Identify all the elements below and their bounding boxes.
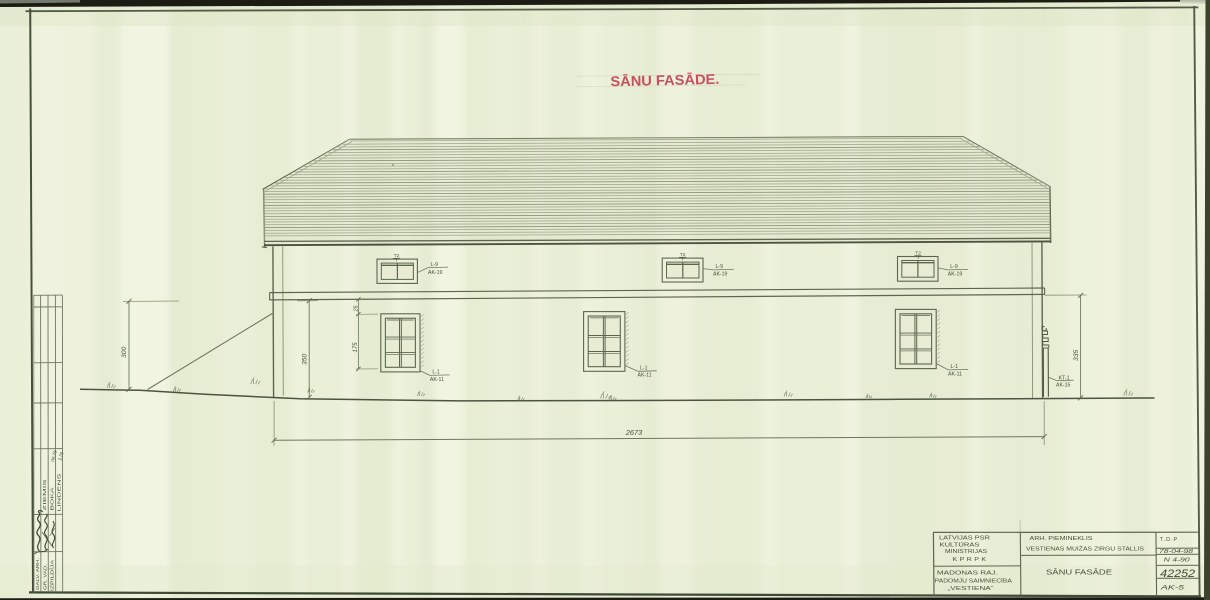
svg-text:AK-19: AK-19 <box>713 272 728 278</box>
svg-text:GALV. ARH.: GALV. ARH. <box>35 558 41 590</box>
svg-text:T.D.P: T.D.P <box>1160 537 1178 543</box>
svg-text:PADOMJU SAIMNIECĪBA: PADOMJU SAIMNIECĪBA <box>935 577 1013 584</box>
svg-text:AK-19: AK-19 <box>948 272 963 278</box>
svg-text:LATVIJAS PSR: LATVIJAS PSR <box>939 535 990 541</box>
svg-text:25: 25 <box>353 305 359 313</box>
svg-text:ZIEMIS: ZIEMIS <box>42 478 48 510</box>
svg-text:LINDENS: LINDENS <box>57 472 63 511</box>
svg-text:AK-11: AK-11 <box>948 372 962 378</box>
svg-text:AK-15: AK-15 <box>1056 383 1071 389</box>
svg-text:IZPILDĪJA: IZPILDĪJA <box>49 559 56 591</box>
svg-text:L-1: L-1 <box>640 365 648 371</box>
svg-text:KULTŪRAS: KULTŪRAS <box>940 542 981 549</box>
svg-text:L-1: L-1 <box>432 370 440 376</box>
svg-text:300: 300 <box>121 346 128 358</box>
svg-text:GR. VAD.: GR. VAD. <box>42 564 48 590</box>
svg-text:175: 175 <box>353 342 359 353</box>
svg-text:BOKA: BOKA <box>49 486 55 510</box>
svg-text:MINISTRIJAS: MINISTRIJAS <box>945 549 988 555</box>
svg-text:335: 335 <box>1073 349 1080 361</box>
svg-text:L-9: L-9 <box>431 262 439 268</box>
svg-text:2673: 2673 <box>625 428 643 437</box>
svg-text:78-04-98: 78-04-98 <box>1159 549 1193 555</box>
svg-text:AK-19: AK-19 <box>428 270 443 276</box>
svg-text:L-9: L-9 <box>716 264 724 270</box>
svg-text:42252: 42252 <box>1160 568 1196 580</box>
svg-text:AK-11: AK-11 <box>430 377 444 383</box>
svg-text:KT-1: KT-1 <box>1059 376 1070 382</box>
svg-text:AK-11: AK-11 <box>638 373 652 379</box>
svg-text:L-1: L-1 <box>951 364 959 370</box>
svg-text:ARH. PIEMINEKLIS: ARH. PIEMINEKLIS <box>1030 536 1094 542</box>
svg-text:AK-5: AK-5 <box>1159 585 1184 592</box>
svg-text:L-9: L-9 <box>950 264 958 270</box>
svg-text:SĀNU FASĀDE.: SĀNU FASĀDE. <box>610 72 719 90</box>
svg-text:MADONAS RAJ.: MADONAS RAJ. <box>937 571 998 577</box>
svg-text:350: 350 <box>301 353 308 365</box>
svg-text:VESTIENAS MUIŽAS ZIRGU STALLIS: VESTIENAS MUIŽAS ZIRGU STALLIS <box>1026 544 1145 552</box>
svg-text:N 4-90: N 4-90 <box>1164 558 1190 564</box>
svg-text:KPRPK: KPRPK <box>953 557 989 563</box>
svg-text:SĀNU FASĀDE: SĀNU FASĀDE <box>1046 567 1112 576</box>
svg-text:„VESTIENA“: „VESTIENA“ <box>948 586 994 592</box>
